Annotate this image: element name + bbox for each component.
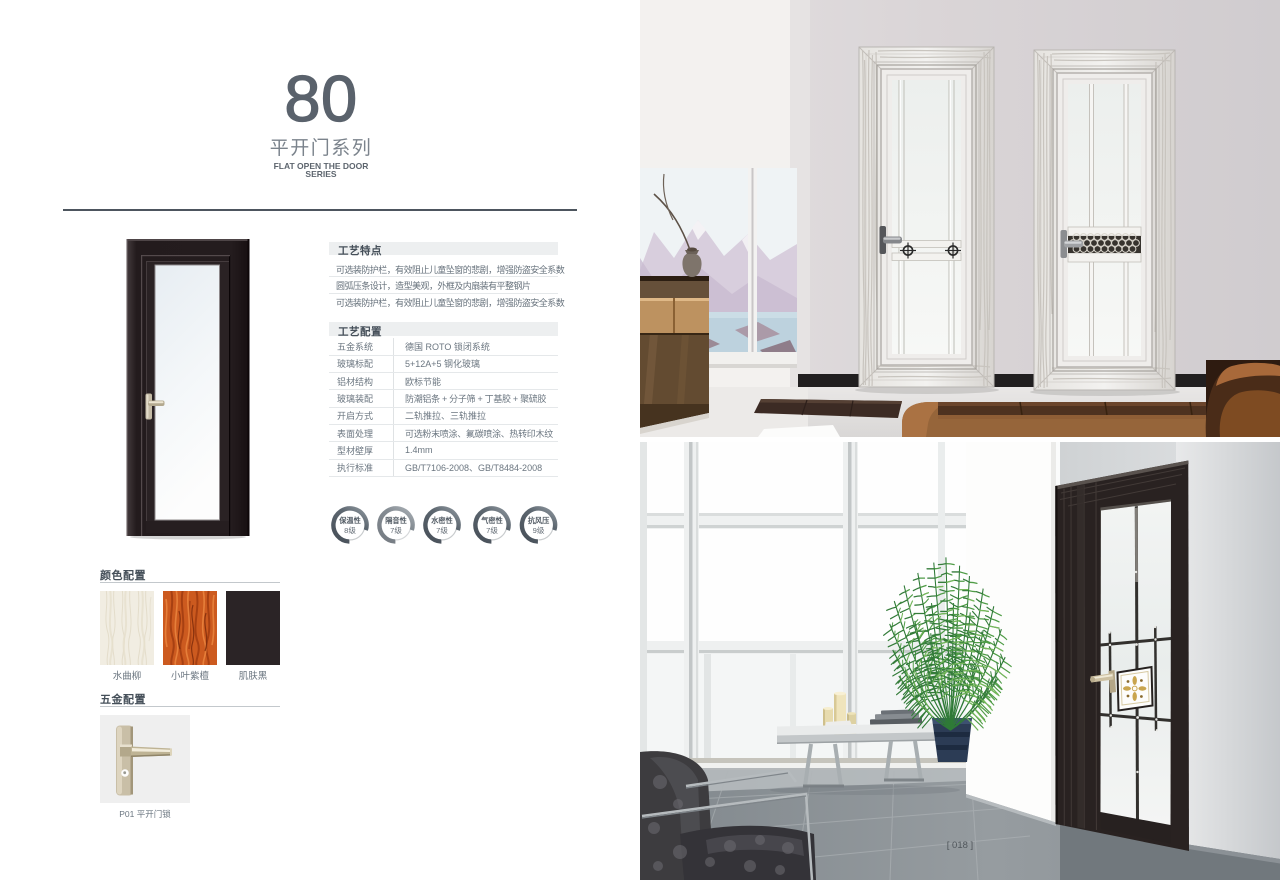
svg-text:气密性: 气密性 [480, 516, 503, 525]
svg-text:7级: 7级 [390, 525, 402, 535]
svg-text:隔音性: 隔音性 [385, 516, 407, 525]
svg-text:抗风压: 抗风压 [528, 516, 550, 525]
svg-text:保温性: 保温性 [338, 516, 361, 525]
svg-text:8级: 8级 [344, 525, 356, 535]
svg-text:7级: 7级 [486, 525, 498, 535]
svg-text:水密性: 水密性 [430, 516, 453, 525]
svg-text:7级: 7级 [436, 525, 448, 535]
svg-text:9级: 9级 [533, 525, 545, 535]
